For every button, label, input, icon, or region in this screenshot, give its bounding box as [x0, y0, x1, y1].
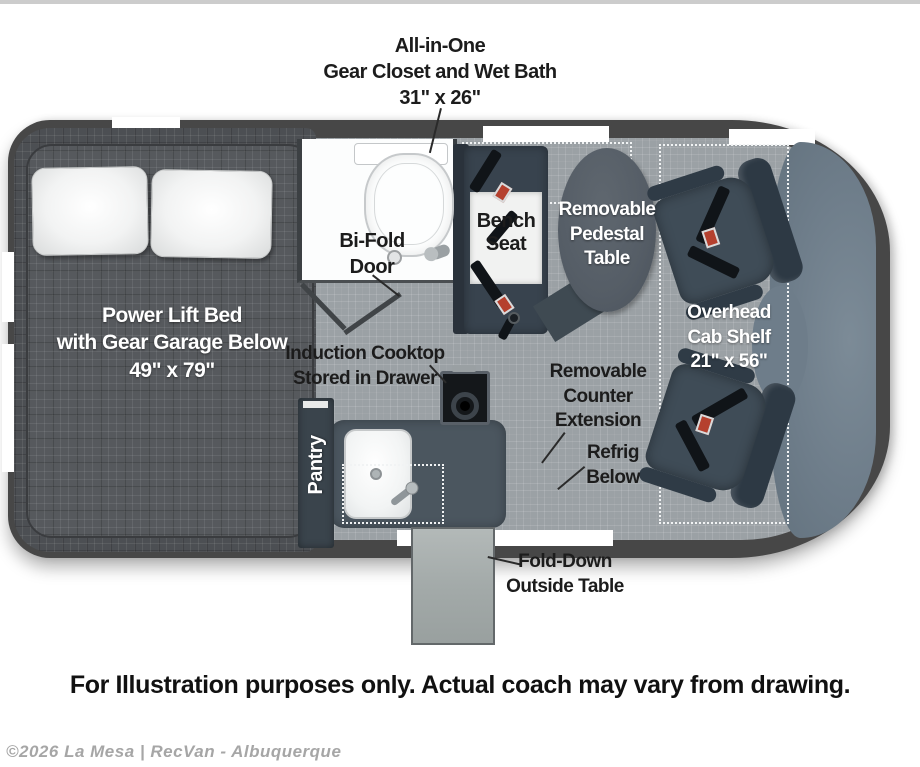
cooktop-burner: [451, 392, 479, 420]
label-bench-seat: Bench Seat: [470, 210, 542, 256]
label-pedestal-table: Removable Pedestal Table: [548, 198, 666, 272]
dealer-watermark: ©2026 La Mesa | RecVan - Albuquerque: [6, 742, 341, 762]
disclaimer-text: For Illustration purposes only. Actual c…: [0, 671, 920, 700]
label-overhead-cab-shelf: Overhead Cab Shelf 21" x 56": [664, 301, 794, 375]
window-mid-top: [483, 126, 609, 142]
seatbelt-latch-head: [508, 312, 520, 324]
counter-extension-outline: [342, 464, 444, 524]
label-induction-cooktop: Induction Cooktop Stored in Drawer: [270, 342, 460, 391]
label-refrig-below: Refrig Below: [568, 441, 658, 490]
label-bifold-door: Bi-Fold Door: [312, 228, 432, 280]
label-gear-closet: All-in-One Gear Closet and Wet Bath 31" …: [270, 33, 610, 111]
pillow-right: [150, 169, 273, 259]
fold-down-outside-table: [411, 527, 495, 645]
label-fold-down-table: Fold-Down Outside Table: [500, 550, 630, 599]
floorplan-page: All-in-One Gear Closet and Wet Bath 31" …: [0, 0, 920, 767]
label-counter-extension: Removable Counter Extension: [535, 360, 661, 434]
label-pantry: Pantry: [303, 407, 329, 523]
pillow-left: [31, 166, 149, 256]
top-divider: [0, 0, 920, 4]
